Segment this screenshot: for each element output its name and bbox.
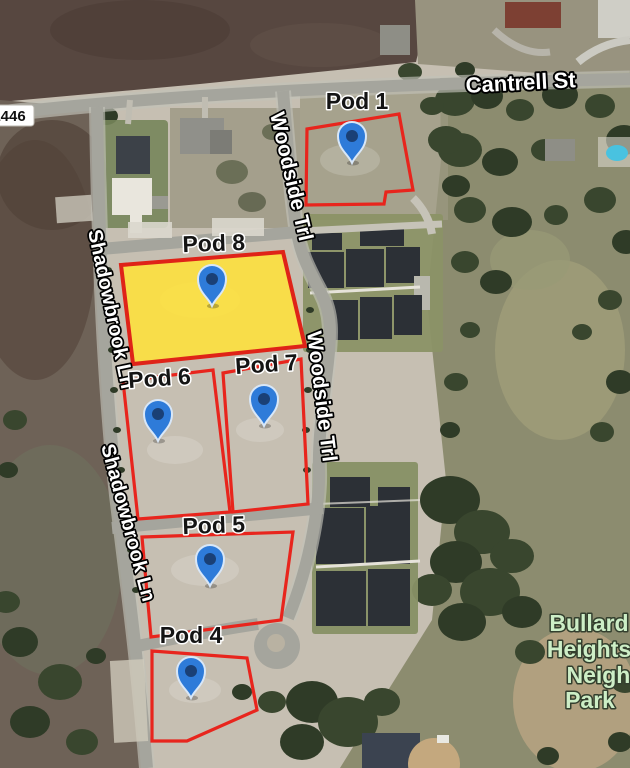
park-label-line-4: Park [565,687,615,713]
pod-5-label: Pod 5 [182,511,246,539]
pod-7-label: Pod 7 [234,349,298,379]
park-label-line-2: Heights [547,636,630,662]
pool [606,145,628,161]
pod-4-label: Pod 4 [160,622,223,648]
satellite-map: Cantrell St Woodside Trl Woodside Trl Sh… [0,0,630,768]
townhouse-cluster-south [312,462,420,634]
house-roof [116,136,150,174]
house-roof [505,2,561,28]
pod-8-label: Pod 8 [182,229,246,257]
route-shield-number: 1446 [0,108,26,125]
park-label-line-1: Bullard [549,610,628,636]
route-shield: 1446 [0,105,34,126]
pod-6-label: Pod 6 [127,363,191,393]
park-label-line-3: Neighborho [566,662,630,688]
pod-1-label: Pod 1 [326,88,389,114]
